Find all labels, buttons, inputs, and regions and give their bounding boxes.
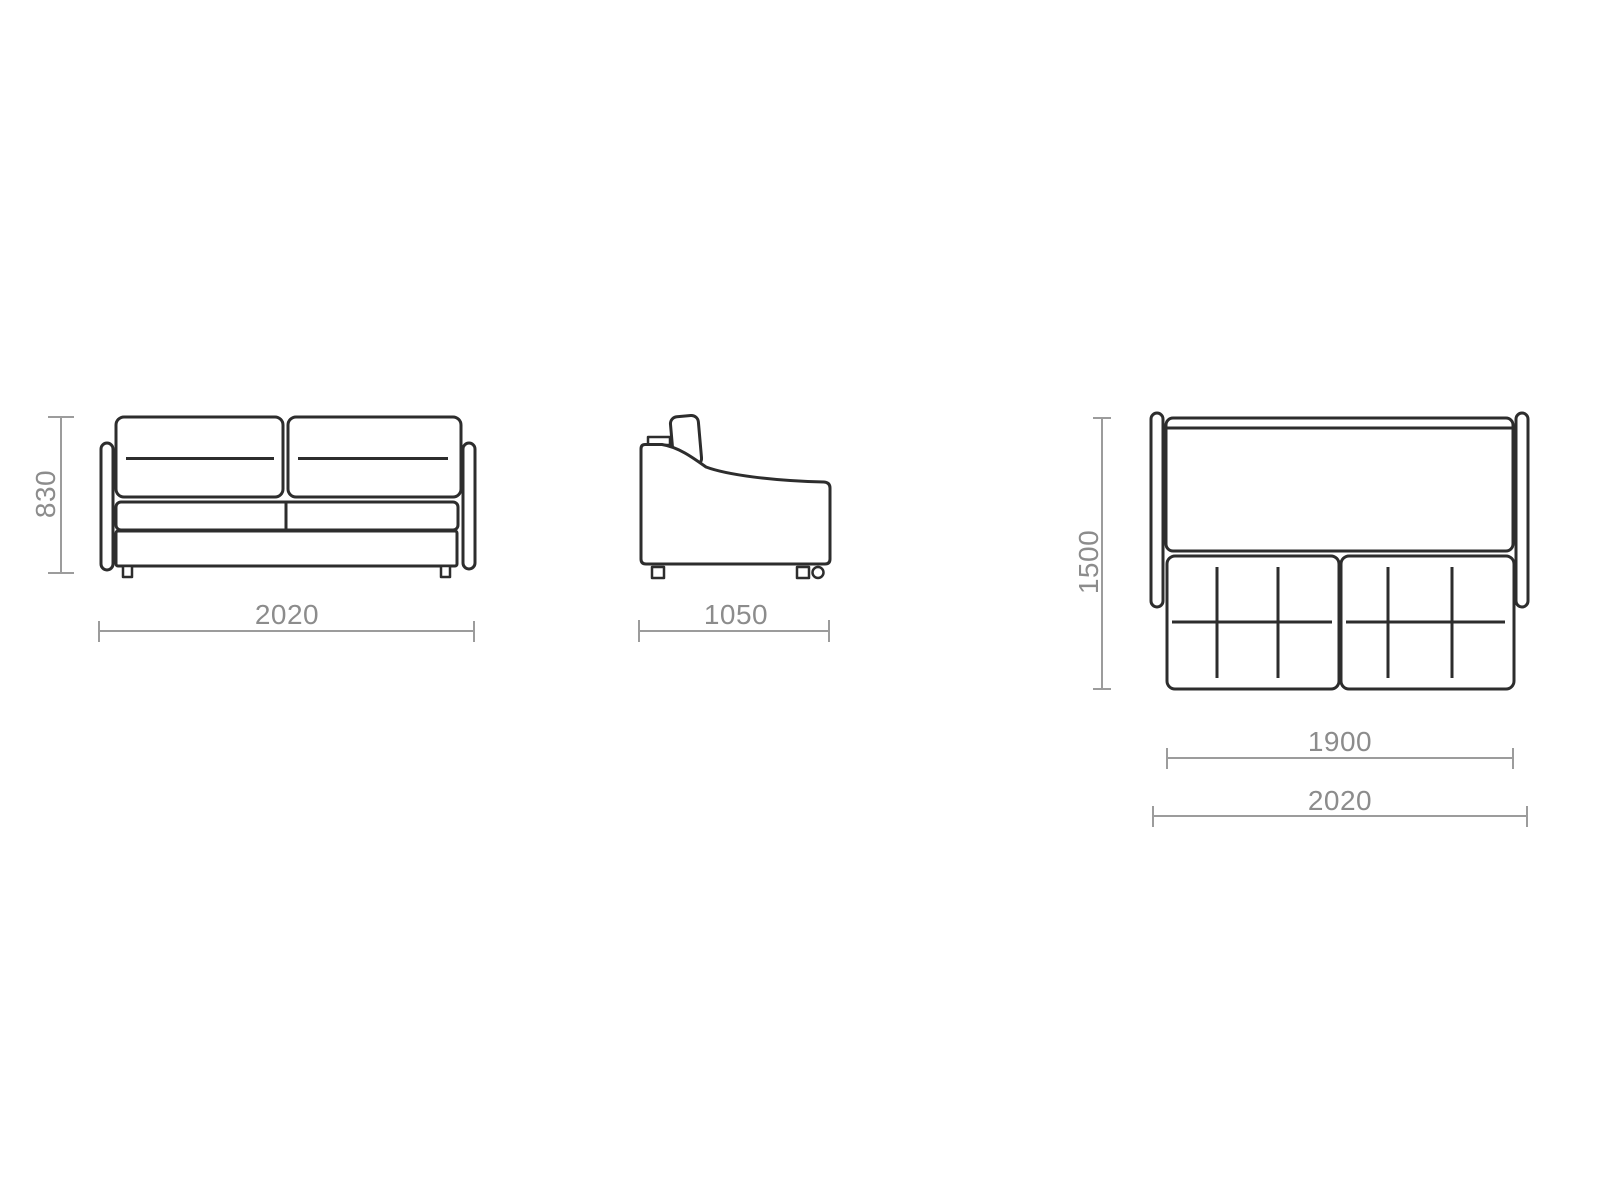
dimension-label-bed-depth: 1500 bbox=[1073, 530, 1104, 594]
dimension-label-side-depth: 1050 bbox=[704, 599, 768, 630]
front-armrest-right bbox=[463, 443, 475, 569]
side-body bbox=[641, 445, 830, 565]
side-leg-back bbox=[797, 567, 809, 578]
dimension-label-overall-width: 2020 bbox=[1308, 785, 1372, 816]
top-armrest-left bbox=[1151, 413, 1163, 607]
dimension-overall-width: 2020 bbox=[1153, 785, 1527, 827]
dimension-label-front-width: 2020 bbox=[255, 599, 319, 630]
dimension-front-width: 2020 bbox=[99, 599, 474, 642]
side-view bbox=[641, 415, 830, 578]
top-view-bed bbox=[1151, 413, 1528, 689]
side-caster-wheel bbox=[813, 567, 824, 578]
front-armrest-left bbox=[101, 443, 113, 570]
top-armrest-right bbox=[1516, 413, 1528, 607]
dimension-side-depth: 1050 bbox=[639, 599, 829, 642]
dimension-bed-width: 1900 bbox=[1167, 726, 1513, 769]
front-base bbox=[116, 531, 457, 566]
technical-drawing-svg: 830 2020 1050 bbox=[0, 0, 1600, 1200]
top-bed-surface bbox=[1166, 418, 1513, 551]
dimension-bed-depth: 1500 bbox=[1073, 418, 1111, 689]
front-leg-right bbox=[441, 566, 450, 577]
dimension-front-height: 830 bbox=[30, 417, 74, 573]
front-leg-left bbox=[123, 566, 132, 577]
dimension-label-front-height: 830 bbox=[30, 470, 61, 518]
sofa-dimension-diagram: 830 2020 1050 bbox=[0, 0, 1600, 1200]
front-view bbox=[101, 417, 475, 577]
side-leg-front bbox=[652, 567, 664, 578]
dimension-label-bed-width: 1900 bbox=[1308, 726, 1372, 757]
